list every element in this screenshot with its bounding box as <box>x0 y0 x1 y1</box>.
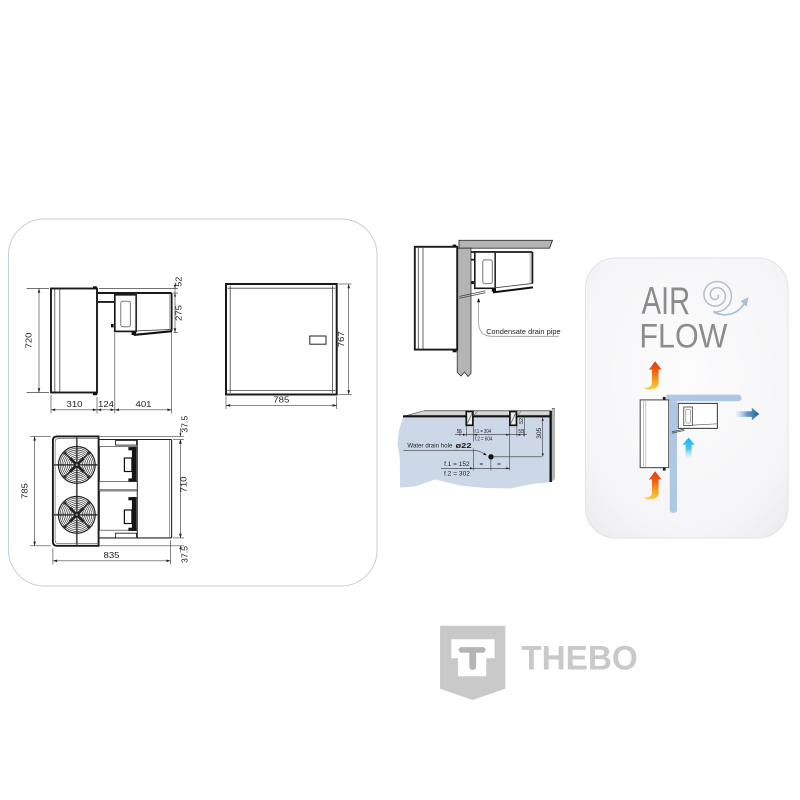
svg-text:Water drain hole: Water drain hole <box>407 443 452 450</box>
svg-text:52: 52 <box>519 418 525 424</box>
svg-text:37.5: 37.5 <box>179 415 189 432</box>
svg-text:Condensate drain pipe: Condensate drain pipe <box>486 327 560 336</box>
svg-text:785: 785 <box>273 395 289 405</box>
svg-text:52: 52 <box>174 276 184 286</box>
svg-text:37.5: 37.5 <box>179 546 189 563</box>
svg-text:305: 305 <box>536 427 543 438</box>
svg-text:=: = <box>479 461 483 468</box>
svg-text:f.2 = 604: f.2 = 604 <box>475 436 493 442</box>
svg-text:THEBO: THEBO <box>521 639 638 677</box>
svg-text:f.1 = 152: f.1 = 152 <box>444 461 470 468</box>
svg-text:FLOW: FLOW <box>639 318 727 356</box>
svg-text:ø22: ø22 <box>456 441 472 450</box>
svg-text:55: 55 <box>518 429 523 435</box>
svg-text:=: = <box>497 461 501 468</box>
svg-text:710: 710 <box>179 476 189 492</box>
svg-text:124: 124 <box>98 399 114 409</box>
svg-text:55: 55 <box>457 429 462 435</box>
svg-text:767: 767 <box>336 331 346 347</box>
svg-text:f.1 = 304: f.1 = 304 <box>475 429 492 435</box>
svg-text:720: 720 <box>24 332 34 348</box>
svg-text:785: 785 <box>19 483 29 499</box>
svg-text:275: 275 <box>174 305 184 321</box>
svg-text:310: 310 <box>67 399 83 409</box>
svg-text:401: 401 <box>136 399 152 409</box>
svg-text:835: 835 <box>104 550 120 560</box>
svg-text:f.2 = 302: f.2 = 302 <box>444 470 470 477</box>
